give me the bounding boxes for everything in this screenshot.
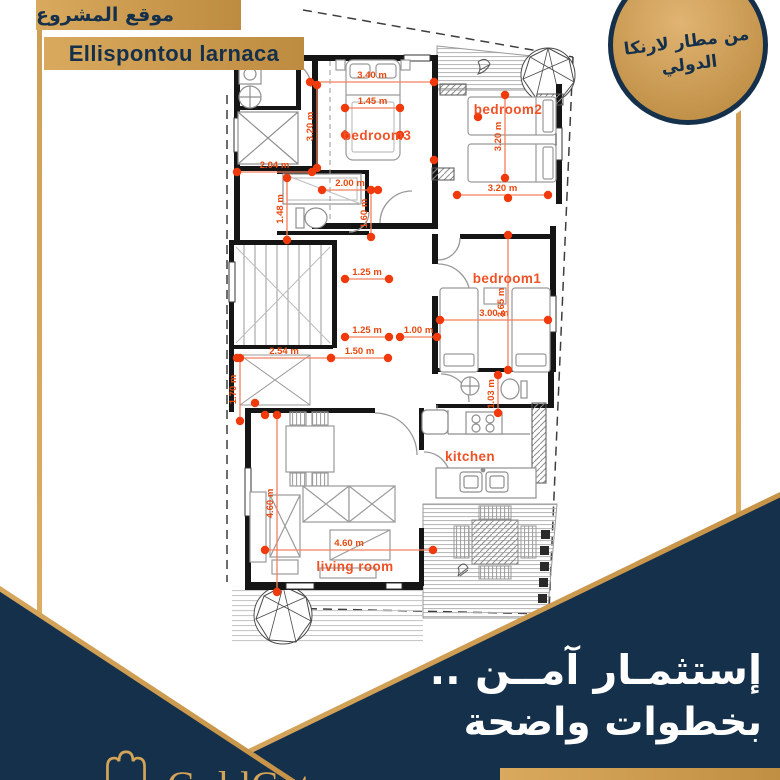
dimension-dot xyxy=(504,194,512,202)
bedroom1-furniture xyxy=(440,288,550,372)
dimension-label: 4.60 m xyxy=(334,538,364,549)
dimension-dot xyxy=(273,411,281,419)
dimension-dot xyxy=(341,333,349,341)
dimension-label: 3.20 m xyxy=(305,112,316,142)
outdoor-deck-bottom xyxy=(423,504,557,618)
tree-bottom-left xyxy=(254,586,312,644)
stairs xyxy=(236,245,330,345)
room-label: kitchen xyxy=(445,449,495,464)
dimension-dot xyxy=(318,186,326,194)
dimension-dot xyxy=(251,399,259,407)
dimension-dot xyxy=(313,81,321,89)
dimension-dot xyxy=(430,156,438,164)
dimension-label: 1.25 m xyxy=(352,325,382,336)
headline-line2: بخطوات واضحة xyxy=(430,701,762,746)
dimension-dot xyxy=(453,191,461,199)
dimension-dot xyxy=(261,546,269,554)
poster-canvas: 3.40 m1.45 m3.20 m2.04 m1.48 m2.00 m1.60… xyxy=(0,0,780,780)
dimension-label: 1.00 m xyxy=(404,325,434,336)
dimension-label: 1.50 m xyxy=(345,346,375,357)
dimension-dot xyxy=(384,354,392,362)
room-label: bedroom1 xyxy=(473,271,542,286)
dimension-dot xyxy=(433,333,441,341)
project-location-banner-ar: موقع المشروع xyxy=(36,0,241,30)
brand-name: GoldGate xyxy=(167,766,331,780)
dimension-dot xyxy=(429,546,437,554)
room-label: living room xyxy=(316,559,393,574)
dimension-dot xyxy=(396,104,404,112)
project-location-text-ar: موقع المشروع xyxy=(36,4,174,26)
gate-crown-icon xyxy=(95,748,157,780)
headline-line1: إستثمـار آمــن .. xyxy=(430,648,762,693)
dimension-dot xyxy=(236,354,244,362)
dimension-dot xyxy=(494,371,502,379)
dimension-dot xyxy=(430,78,438,86)
dimension-label: 1.70 m xyxy=(228,375,239,405)
dimension-dot xyxy=(385,275,393,283)
footer-gold-bar xyxy=(500,768,780,780)
dimension-dot xyxy=(308,168,316,176)
dimension-label: 1.03 m xyxy=(486,379,497,409)
dimension-dot xyxy=(494,409,502,417)
dimension-dot xyxy=(283,174,291,182)
dimension-label: 1.48 m xyxy=(275,194,286,224)
dimension-dot xyxy=(504,366,512,374)
dimension-label: 3.20 m xyxy=(488,183,518,194)
room-label: bedroom2 xyxy=(474,102,542,117)
dimension-dot xyxy=(504,231,512,239)
under-stair-closet xyxy=(240,355,310,405)
project-location-text-en: Ellispontou larnaca xyxy=(69,41,280,67)
dimension-dot xyxy=(273,588,281,596)
dimension-dot xyxy=(341,275,349,283)
dimension-label: 3.20 m xyxy=(493,122,504,152)
room-label: bedroom3 xyxy=(343,128,412,143)
project-location-banner-en: Ellispontou larnaca xyxy=(44,37,304,70)
footer-headline: إستثمـار آمــن .. بخطوات واضحة xyxy=(430,648,762,746)
dimension-dot xyxy=(544,316,552,324)
dimension-dot xyxy=(261,411,269,419)
dimension-label: 1.45 m xyxy=(358,96,388,107)
dimension-dot xyxy=(236,417,244,425)
dimension-label: 3.65 m xyxy=(496,288,507,318)
dimension-dot xyxy=(327,354,335,362)
dimension-dot xyxy=(436,316,444,324)
dimension-label: 2.04 m xyxy=(260,160,290,171)
dimension-dot xyxy=(233,168,241,176)
dimension-label: 1.25 m xyxy=(352,267,382,278)
dimension-label: 2.54 m xyxy=(269,346,299,357)
dimension-dot xyxy=(385,333,393,341)
dimension-dot xyxy=(501,91,509,99)
dimension-dot xyxy=(544,191,552,199)
dimension-dot xyxy=(396,333,404,341)
dimension-label: 4.60 m xyxy=(265,489,276,519)
dimension-dot xyxy=(501,174,509,182)
dimension-dot xyxy=(341,104,349,112)
brand-logo: GoldGate xyxy=(95,748,331,780)
dimension-label: 1.60 m xyxy=(359,199,370,229)
dimension-dot xyxy=(367,186,375,194)
dimension-dot xyxy=(367,233,375,241)
dimension-dot xyxy=(283,236,291,244)
dimension-label: 3.40 m xyxy=(357,70,387,81)
dimension-label: 2.00 m xyxy=(335,178,365,189)
